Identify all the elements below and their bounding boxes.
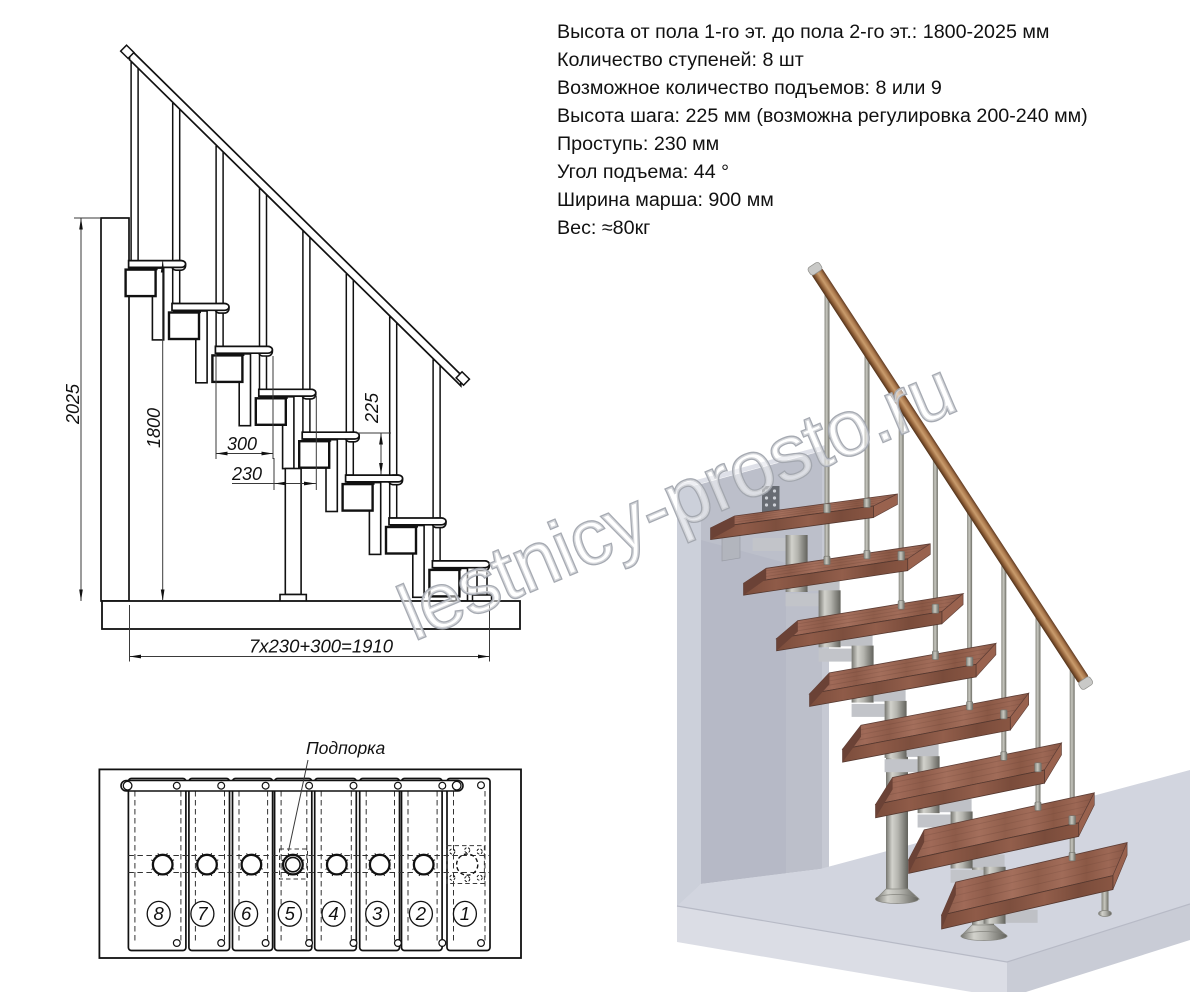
- svg-text:Возможное количество подъемов:: Возможное количество подъемов: 8 или 9: [557, 77, 942, 99]
- svg-text:Высота шага: 225 мм (возможна: Высота шага: 225 мм (возможна регулировк…: [557, 105, 1088, 127]
- svg-text:2: 2: [415, 903, 427, 924]
- svg-text:Высота от пола 1-го эт. до пол: Высота от пола 1-го эт. до пола 2-го эт.…: [557, 21, 1049, 43]
- svg-text:4: 4: [328, 903, 338, 924]
- svg-text:1800: 1800: [144, 408, 164, 448]
- svg-text:Проступь: 230 мм: Проступь: 230 мм: [557, 133, 719, 155]
- svg-text:6: 6: [241, 903, 252, 924]
- svg-text:Ширина марша: 900 мм: Ширина марша: 900 мм: [557, 189, 774, 211]
- svg-text:230: 230: [231, 464, 262, 484]
- svg-text:8: 8: [154, 903, 165, 924]
- svg-text:5: 5: [285, 903, 296, 924]
- svg-text:1: 1: [460, 903, 470, 924]
- svg-text:Угол подъема: 44 °: Угол подъема: 44 °: [557, 161, 729, 183]
- svg-text:7x230+300=1910: 7x230+300=1910: [249, 636, 394, 657]
- svg-text:225: 225: [362, 392, 382, 424]
- svg-text:Вес: ≈80кг: Вес: ≈80кг: [557, 217, 650, 239]
- svg-text:2025: 2025: [63, 383, 83, 425]
- svg-text:Подпорка: Подпорка: [306, 738, 385, 758]
- svg-text:Количество ступеней: 8 шт: Количество ступеней: 8 шт: [557, 49, 804, 71]
- svg-text:3: 3: [372, 903, 383, 924]
- svg-text:300: 300: [227, 434, 257, 454]
- svg-text:7: 7: [197, 903, 208, 924]
